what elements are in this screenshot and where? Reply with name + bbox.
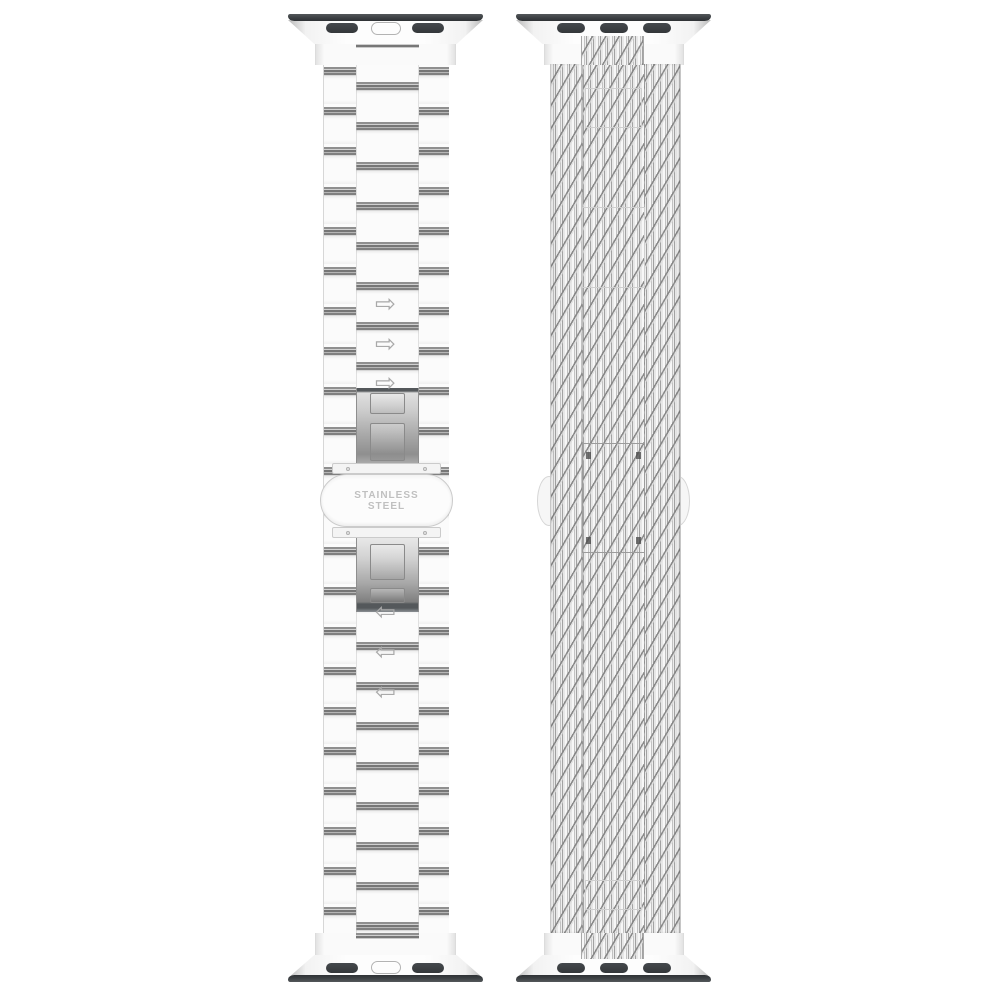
link-bracelet-band: ⇨ ⇨ ⇨ STAINLESS STEEL ⇦ ⇦ ⇦ [288,14,483,983]
mesh-outline-box [585,88,642,128]
connector-bar-top [288,14,483,21]
mesh-outline-box [585,880,642,910]
clasp-notch [636,452,641,459]
connector-bar-top [516,14,711,21]
clasp-plate-bottom [332,527,441,538]
engraving-line1: STAINLESS [354,490,418,501]
right-arrow-icon: ⇨ [324,371,447,395]
connector-slot [643,963,671,973]
mesh-strap-end-top [581,36,644,65]
clasp-fold-top [356,388,419,463]
connector-slot [600,23,628,33]
left-arrow-icon: ⇦ [324,600,447,624]
connector-slot [326,23,358,33]
connector-body-bottom [315,933,456,956]
clasp-notch [636,537,641,544]
left-arrow-icon: ⇦ [324,640,447,664]
right-arrow-icon: ⇨ [324,292,447,316]
right-arrow-icon: ⇨ [324,332,447,356]
screw-icon [346,531,350,535]
left-arrow-icon: ⇦ [324,680,447,704]
screw-icon [346,467,350,471]
link-separator-stripe [356,933,419,939]
connector-slot [557,23,585,33]
connector-bar-bottom [288,975,483,982]
clasp-notch [586,452,591,459]
connector-slot [412,23,444,33]
connector-slot [326,963,358,973]
release-button-pill [371,22,401,35]
mesh-strap-end-bottom [581,933,644,959]
screw-icon [423,531,427,535]
clasp-cutout [370,544,405,580]
link-band-body: ⇨ ⇨ ⇨ STAINLESS STEEL ⇦ ⇦ ⇦ [323,64,448,933]
connector-slot [600,963,628,973]
mesh-band [516,14,711,983]
mesh-band-body [550,64,681,933]
release-button-pill [371,961,401,974]
clasp-cover-plate: STAINLESS STEEL [320,474,453,527]
clasp-outline [582,443,645,553]
clasp-notch [586,537,591,544]
connector-body-top [315,42,456,65]
connector-slot [557,963,585,973]
clasp-plate-top [332,463,441,474]
clasp-cutout [370,423,405,461]
screw-icon [423,467,427,471]
connector-slot [643,23,671,33]
connector-bar-bottom [516,975,711,982]
slider-outline [582,207,645,288]
connector-slot [412,963,444,973]
engraving-line2: STEEL [368,501,405,512]
